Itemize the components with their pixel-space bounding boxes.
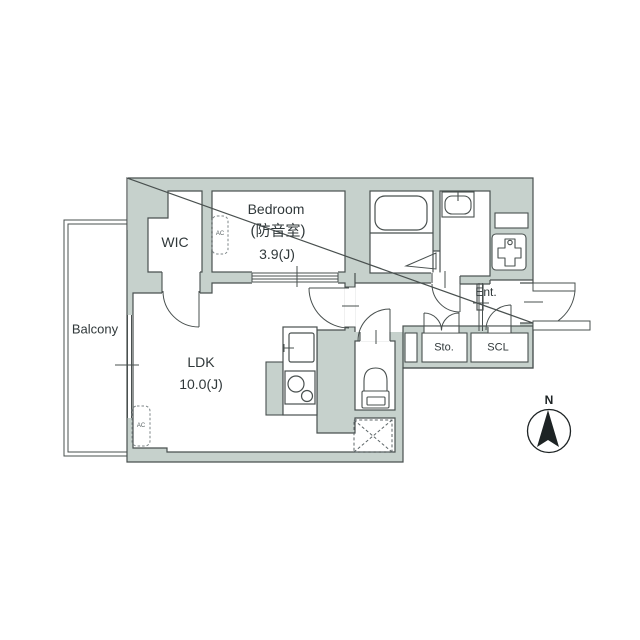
bedroom-size-label: 3.9(J) — [259, 247, 295, 261]
bedroom-sublabel: (防音室) — [251, 224, 306, 239]
storage-label: Sto. — [434, 343, 454, 354]
bedroom-ac-label: AC — [216, 231, 224, 237]
floor-plan-drawing — [0, 0, 640, 640]
balcony-label: Balcony — [72, 323, 118, 336]
shoe-closet-label: SCL — [487, 343, 508, 354]
kitchen-counter — [283, 327, 317, 415]
walls — [127, 178, 533, 462]
strip-sliver — [405, 333, 417, 362]
bathroom-folding-door — [406, 253, 436, 269]
wic-label: WIC — [161, 235, 188, 249]
pipe-space-cross — [354, 420, 392, 452]
toilet-icon — [362, 368, 389, 408]
stove-icon — [285, 371, 315, 404]
ldk-ac-label: AC — [137, 423, 145, 429]
wic-door — [163, 291, 199, 327]
floor-plan: Balcony WIC Bedroom (防音室) 3.9(J) LDK 10.… — [0, 0, 640, 640]
kitchen-sink-icon — [284, 333, 314, 362]
ldk-size-label: 10.0(J) — [179, 377, 223, 391]
entrance-label: Ent. — [475, 286, 496, 298]
bathtub-icon — [370, 196, 433, 233]
ldk-label: LDK — [187, 355, 214, 369]
washing-machine-pan-icon — [492, 234, 526, 270]
kitchen-partition-wall — [266, 362, 283, 415]
entrance-door — [524, 283, 590, 330]
bedroom-label: Bedroom — [248, 202, 305, 216]
washbasin-icon — [442, 191, 474, 217]
balcony-window — [115, 315, 139, 418]
compass-icon — [528, 410, 571, 453]
entrance-outside-step — [533, 321, 590, 330]
compass-north-label: N — [545, 394, 554, 406]
utility-cabinet — [495, 213, 528, 228]
balcony-outline — [64, 220, 127, 456]
